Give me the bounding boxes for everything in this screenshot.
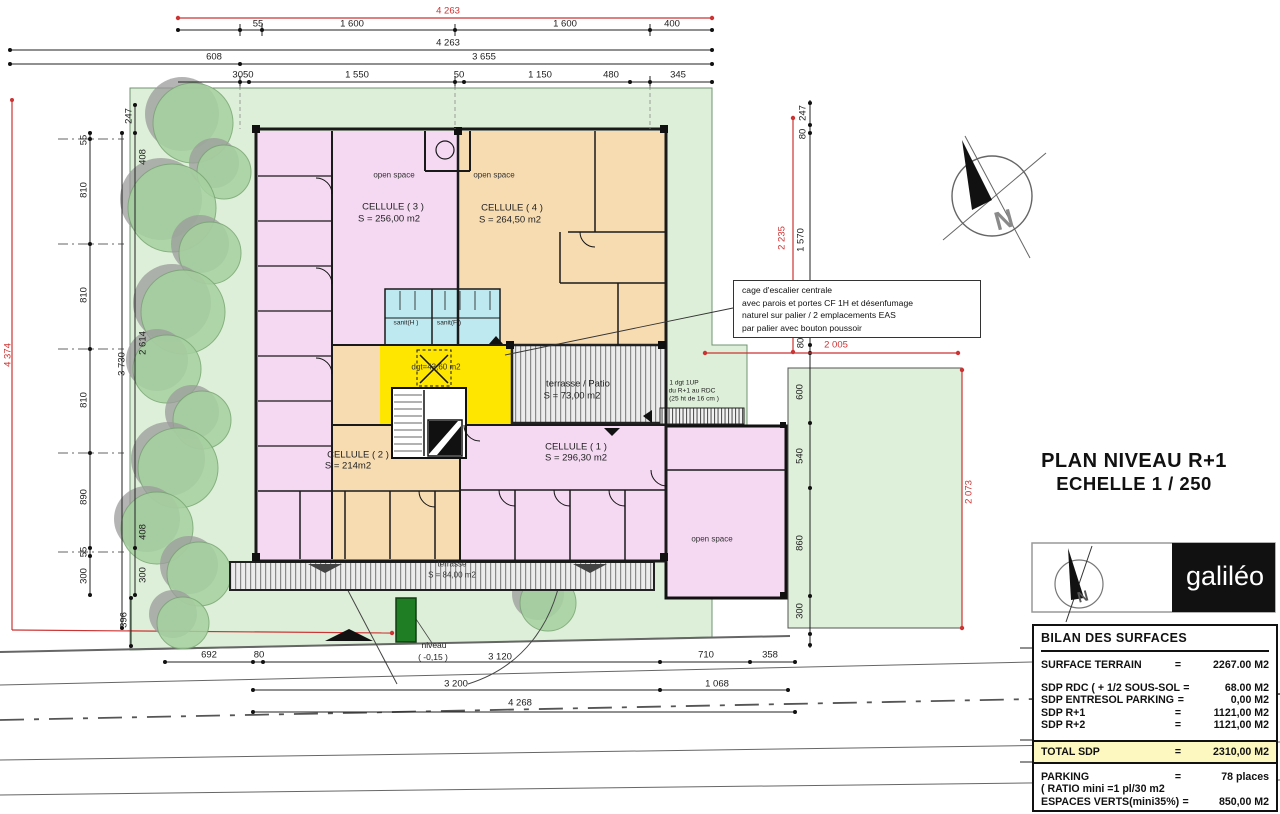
row-eq: = — [1171, 707, 1185, 719]
row-label: TOTAL SDP — [1041, 746, 1171, 758]
north-compass — [943, 136, 1046, 258]
row-eq: = — [1180, 682, 1193, 694]
row-value: 850,00 M2 — [1192, 796, 1269, 808]
row-eq: = — [1179, 796, 1192, 808]
table-row-espaces-verts: ESPACES VERTS(mini35%) = 850,00 M2 — [1041, 796, 1269, 808]
floor-plan-sheet: 4 263551 6001 6004004 2636083 65530501 5… — [0, 0, 1280, 814]
stair-cage-note: cage d'escalier centrale avec parois et … — [733, 280, 981, 338]
row-eq: = — [1174, 694, 1188, 706]
exterior-stair — [660, 408, 744, 424]
row-value: 1121,00 M2 — [1185, 707, 1269, 719]
table-header: BILAN DES SURFACES — [1041, 631, 1269, 652]
row-label: SDP ENTRESOL PARKING — [1041, 694, 1174, 706]
row-value: 2267.00 M2 — [1185, 659, 1269, 671]
row-value: 2310,00 M2 — [1185, 746, 1269, 758]
sanitaires — [385, 289, 500, 345]
planter — [396, 598, 416, 642]
table-row-sdp-r2: SDP R+2 = 1121,00 M2 — [1041, 719, 1269, 731]
row-value: 68.00 M2 — [1193, 682, 1269, 694]
green-patch-right — [788, 368, 962, 628]
row-eq: = — [1171, 746, 1185, 758]
row-label: SURFACE TERRAIN — [1041, 659, 1171, 671]
stair-note-line: naturel sur palier / 2 emplacements EAS — [742, 309, 972, 322]
plan-scale: ECHELLE 1 / 250 — [1024, 473, 1244, 495]
table-row-total: TOTAL SDP = 2310,00 M2 — [1034, 740, 1276, 764]
row-eq: = — [1171, 659, 1185, 671]
surface-table: BILAN DES SURFACES SURFACE TERRAIN = 226… — [1032, 624, 1278, 812]
row-label: SDP R+1 — [1041, 707, 1171, 719]
row-eq: = — [1171, 771, 1185, 783]
row-value: 0,00 M2 — [1188, 694, 1269, 706]
logo-brand: galiléo — [1180, 561, 1270, 592]
table-row-parking: PARKING = 78 places — [1041, 771, 1269, 783]
stair-note-line: cage d'escalier centrale — [742, 284, 972, 297]
north-needle — [962, 140, 992, 210]
row-label: PARKING — [1041, 771, 1171, 783]
stair-note-line: avec parois et portes CF 1H et désenfuma… — [742, 297, 972, 310]
row-label: ESPACES VERTS(mini35%) — [1041, 796, 1179, 808]
table-ticks — [1020, 648, 1032, 762]
row-label: SDP RDC ( + 1/2 SOUS-SOL — [1041, 682, 1180, 694]
row-label: ( RATIO mini =1 pl/30 m2 — [1041, 783, 1269, 795]
row-value: 1121,00 M2 — [1185, 719, 1269, 731]
table-row-parking-ratio: ( RATIO mini =1 pl/30 m2 — [1041, 783, 1269, 795]
row-label: SDP R+2 — [1041, 719, 1171, 731]
plan-title: PLAN NIVEAU R+1 — [1024, 450, 1244, 473]
cellule-3-offices — [258, 131, 332, 559]
stairwell — [392, 388, 466, 458]
table-row-sdp-r1: SDP R+1 = 1121,00 M2 — [1041, 707, 1269, 719]
title-block: PLAN NIVEAU R+1 ECHELLE 1 / 250 — [1024, 450, 1244, 495]
table-row-sdp-entresol: SDP ENTRESOL PARKING = 0,00 M2 — [1041, 694, 1269, 706]
cellule-1 — [460, 425, 666, 560]
stair-note-line: par palier avec bouton poussoir — [742, 322, 972, 335]
table-row-terrain: SURFACE TERRAIN = 2267.00 M2 — [1041, 659, 1269, 671]
row-value: 78 places — [1185, 771, 1269, 783]
row-eq: = — [1171, 719, 1185, 731]
table-row-sdp-rdc: SDP RDC ( + 1/2 SOUS-SOL = 68.00 M2 — [1041, 682, 1269, 694]
terrasse-patio — [512, 345, 666, 423]
cellule-1-wing — [666, 426, 786, 598]
